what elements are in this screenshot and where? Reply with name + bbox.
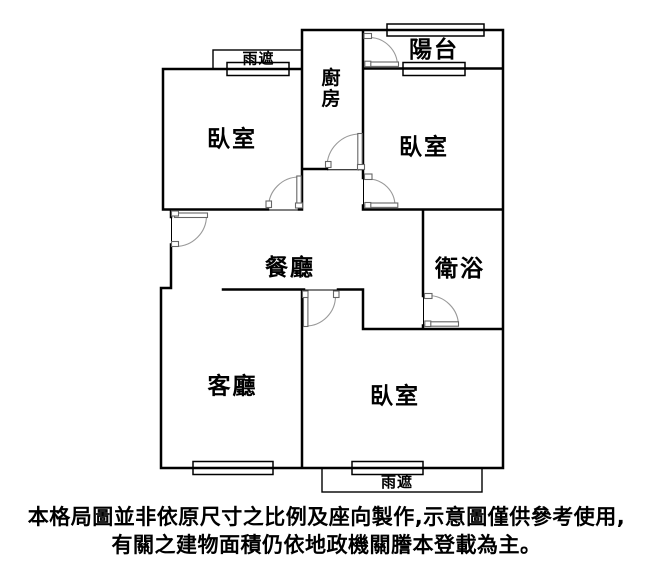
- room-label-living: 客廳: [208, 373, 258, 400]
- door-hinge-block: [358, 165, 365, 170]
- room-label-bedroom-top-left: 臥室: [207, 126, 257, 153]
- door-bedroom-bottom-right: [303, 291, 340, 327]
- door-jamb: [266, 201, 272, 208]
- door-jamb: [365, 174, 373, 180]
- door-leaf: [304, 297, 308, 327]
- door-jamb: [172, 242, 179, 247]
- door-leaf: [358, 134, 362, 167]
- door-bathroom: [425, 294, 459, 327]
- room-label-kitchen: 廚房: [321, 66, 340, 110]
- disclaimer-line-1: 本格局圖並非依原尺寸之比例及座向製作,示意圖僅供參考使用,: [0, 503, 653, 531]
- canopy-top-label: 雨遮: [242, 50, 274, 68]
- room-label-dining: 餐廳: [265, 254, 315, 281]
- door-hinge-block: [303, 291, 309, 298]
- door-swing-arc: [306, 296, 336, 326]
- door-swing-arc: [176, 216, 207, 247]
- room-label-bathroom: 衛浴: [434, 255, 485, 282]
- door-hinge-block: [172, 211, 179, 216]
- door-bedroom-top-left: [266, 176, 303, 208]
- door-jamb: [425, 294, 433, 299]
- doors: [172, 34, 459, 327]
- door-hinge-block: [365, 61, 371, 66]
- disclaimer: 本格局圖並非依原尺寸之比例及座向製作,示意圖僅供參考使用, 有關之建物面積仍依地…: [0, 503, 653, 559]
- door-swing-arc: [368, 179, 395, 206]
- door-swing-arc: [327, 134, 360, 167]
- room-label-bedroom-bottom-right: 臥室: [370, 383, 420, 410]
- door-kitchen: [326, 134, 365, 170]
- door-swing-arc: [269, 177, 300, 208]
- door-jamb: [364, 34, 372, 39]
- door-hinge-block: [425, 321, 431, 327]
- door-jamb: [326, 162, 332, 168]
- door-jamb: [334, 291, 340, 298]
- door-leaf: [175, 213, 208, 218]
- room-label-bedroom-top-right: 臥室: [399, 134, 449, 161]
- floor-plan: 臥室 廚房 陽台 臥室 餐廳 衛浴 客廳 臥室 雨遮 雨遮: [0, 0, 653, 570]
- canopy-bottom-label: 雨遮: [381, 473, 413, 491]
- door-hinge-block: [296, 203, 303, 208]
- disclaimer-line-2: 有關之建物面積仍依地政機關謄本登載為主。: [0, 531, 653, 559]
- door-entry: [172, 211, 208, 247]
- door-hinge-block: [365, 203, 371, 209]
- room-label-balcony: 陽台: [409, 36, 459, 63]
- room-labels: 臥室 廚房 陽台 臥室 餐廳 衛浴 客廳 臥室 雨遮 雨遮: [207, 36, 485, 491]
- door-bedroom-top-right: [365, 174, 398, 208]
- door-balcony: [364, 34, 399, 67]
